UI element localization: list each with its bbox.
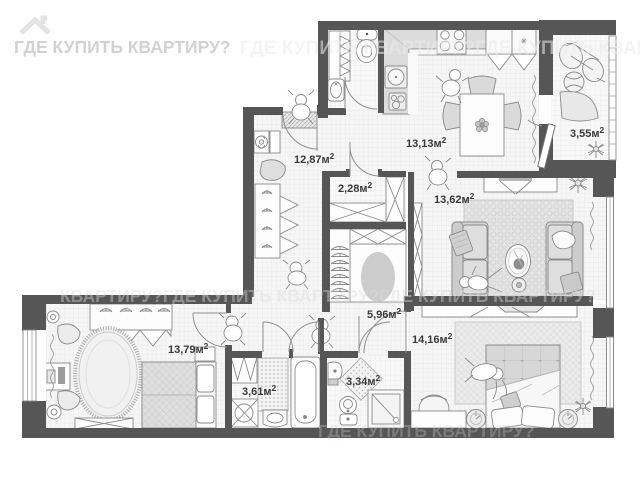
svg-text:ГДЕ КУПИТЬ КВАРТИРУ?: ГДЕ КУПИТЬ КВАРТИРУ? xyxy=(318,421,535,441)
svg-text:3,34м2: 3,34м2 xyxy=(346,373,381,388)
svg-text:3,61м2: 3,61м2 xyxy=(242,383,277,398)
svg-text:ГДЕ КУПИТЬ КВАРТИРУ?: ГДЕ КУПИТЬ КВАРТИРУ? xyxy=(14,37,231,57)
svg-text:13,13м2: 13,13м2 xyxy=(406,135,447,150)
svg-text:3,55м2: 3,55м2 xyxy=(570,125,605,140)
svg-text:13,79м2: 13,79м2 xyxy=(168,341,209,356)
svg-text:5,96м2: 5,96м2 xyxy=(367,306,402,321)
svg-text:2,28м2: 2,28м2 xyxy=(338,180,373,195)
svg-text:КВАРТИРУ?ГДЕ КУПИТЬ КВАРТИРУ?Г: КВАРТИРУ?ГДЕ КУПИТЬ КВАРТИРУ?ГДЕ КУПИТЬ … xyxy=(60,286,596,306)
svg-text:13,62м2: 13,62м2 xyxy=(434,191,475,206)
svg-text:12,87м2: 12,87м2 xyxy=(294,151,335,166)
svg-text:14,16м2: 14,16м2 xyxy=(412,331,453,346)
svg-text:ГДЕ КУПИТЬ КВАРТИРУ?ГДЕ КУПИТЬ: ГДЕ КУПИТЬ КВАРТИРУ?ГДЕ КУПИТЬ КВАРТИРУ? xyxy=(240,38,640,59)
